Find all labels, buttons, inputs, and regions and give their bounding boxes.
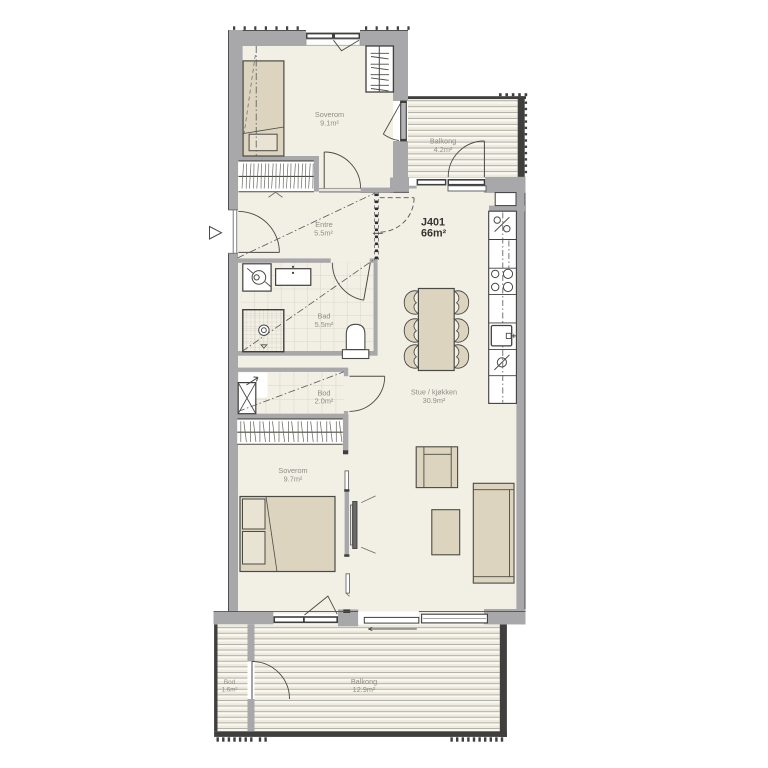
svg-text:1.6m²: 1.6m²: [221, 686, 237, 693]
svg-text:9.1m²: 9.1m²: [320, 119, 339, 128]
svg-text:9.7m²: 9.7m²: [284, 475, 303, 484]
svg-text:30.9m²: 30.9m²: [423, 396, 446, 405]
svg-text:5.5m²: 5.5m²: [315, 320, 334, 329]
svg-text:12.9m²: 12.9m²: [353, 685, 376, 694]
svg-text:5.5m²: 5.5m²: [314, 229, 333, 238]
svg-text:Bod: Bod: [224, 679, 236, 686]
svg-text:4.2m²: 4.2m²: [434, 145, 453, 154]
svg-text:66m²: 66m²: [421, 227, 447, 239]
svg-text:2.0m²: 2.0m²: [315, 397, 334, 406]
